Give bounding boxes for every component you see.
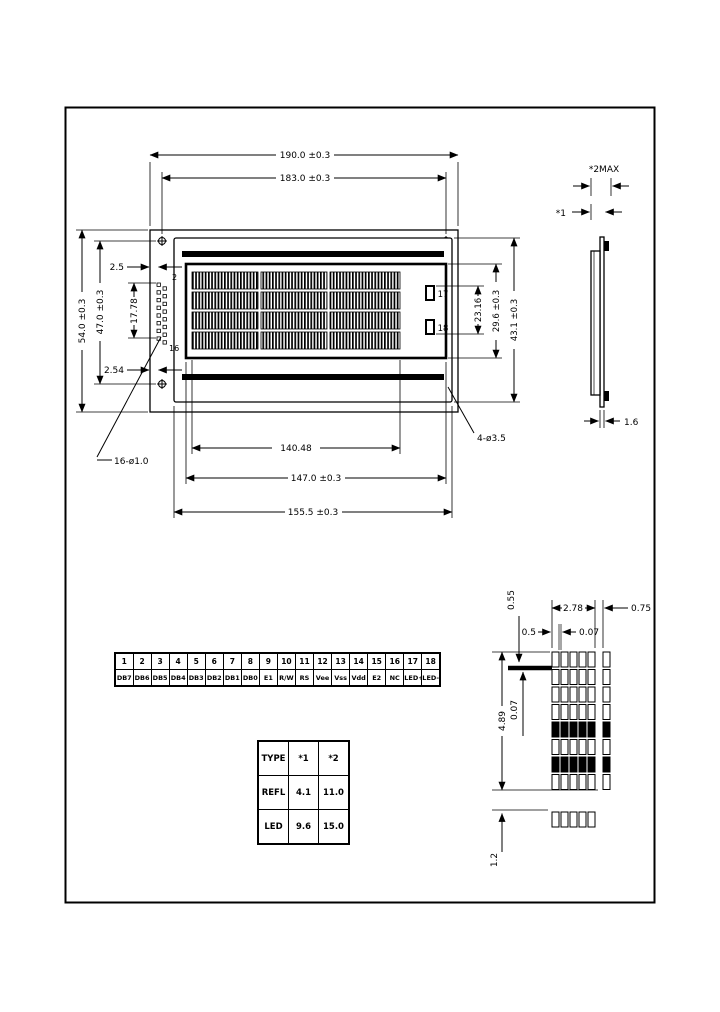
type-table-row-refl: REFL 4.1 11.0 [258, 776, 349, 810]
pin-number: 6 [205, 653, 223, 670]
pin-number: 12 [314, 653, 332, 670]
type-table-header-row: TYPE *1 *2 [258, 741, 349, 776]
pin-number: 8 [241, 653, 259, 670]
pin-name: E1 [259, 670, 277, 687]
type-table-header: *2 [319, 741, 350, 776]
type-table-cell: 4.1 [289, 776, 319, 810]
dim-thickness-1: *1 [556, 209, 566, 219]
solder-tab-bottom [604, 391, 609, 401]
pin-16-label: 16 [169, 344, 179, 353]
dim-va-height: 29.6 ±0.3 [492, 290, 502, 332]
type-table-cell: 9.6 [289, 810, 319, 845]
pin-assignment-table: 1 2 3 4 5 6 7 8 9 10 11 12 13 14 15 16 1… [114, 652, 441, 687]
dim-dot-width: 0.5 [522, 628, 536, 638]
pin-name: DB1 [223, 670, 241, 687]
pin-name: DB0 [241, 670, 259, 687]
dim-pcb-thickness: 1.6 [624, 418, 639, 428]
dim-dot-gap-v: 0.07 [510, 700, 520, 720]
pin-holes-label: 16-ø1.0 [114, 457, 149, 467]
dim-dot-height: 0.55 [507, 590, 517, 610]
type-thickness-table: TYPE *1 *2 REFL 4.1 11.0 LED 9.6 15.0 [257, 740, 350, 845]
pin-name: R/W [277, 670, 295, 687]
pin-name: E2 [368, 670, 386, 687]
pin-number: 17 [404, 653, 422, 670]
panel-side [591, 251, 600, 395]
solder-tab-top [604, 241, 609, 251]
datasheet-page: 17 18 2 16 190.0 ±0.3 183.0 ±0.3 54.0 ±0… [0, 0, 720, 1012]
pin-number: 15 [368, 653, 386, 670]
dim-dot-gap-h: 0.07 [579, 628, 599, 638]
pin-number: 16 [386, 653, 404, 670]
dim-char-width: 2.78 [563, 604, 583, 614]
bezel-bottom-bar [182, 374, 444, 380]
pad-17-label: 17 [438, 290, 449, 300]
dim-char-area-width: 140.48 [280, 444, 312, 454]
dim-char-height: 4.89 [498, 711, 508, 731]
dim-pin-pitch: 2.54 [104, 366, 124, 376]
pin-name: Vee [314, 670, 332, 687]
pin-2-label: 2 [172, 273, 177, 282]
pin-name: RS [295, 670, 313, 687]
pin-number-row: 1 2 3 4 5 6 7 8 9 10 11 12 13 14 15 16 1… [115, 653, 440, 670]
pad-18-label: 18 [438, 324, 449, 334]
dim-bezel-width: 155.5 ±0.3 [288, 508, 338, 518]
pad-18 [426, 320, 434, 334]
dim-edge-gap: 2.5 [110, 263, 124, 273]
type-table-header: TYPE [258, 741, 289, 776]
pin-name: LED+ [404, 670, 422, 687]
type-table-cell: 15.0 [319, 810, 350, 845]
next-line-dot-row [552, 812, 595, 827]
dim-width-outer: 190.0 ±0.3 [280, 151, 330, 161]
pin-name: DB5 [151, 670, 169, 687]
pin-number: 1 [115, 653, 133, 670]
dim-bezel-height: 43.1 ±0.3 [510, 299, 520, 341]
pin-number: 3 [151, 653, 169, 670]
pin-number: 13 [332, 653, 350, 670]
dim-height-holes: 47.0 ±0.3 [96, 290, 106, 335]
pin-name: Vdd [350, 670, 368, 687]
type-table-row-led: LED 9.6 15.0 [258, 810, 349, 845]
dim-height-outer: 54.0 ±0.3 [78, 299, 88, 344]
dim-max-thickness: *2MAX [589, 165, 619, 175]
type-table-cell: REFL [258, 776, 289, 810]
pin-name-row: DB7 DB6 DB5 DB4 DB3 DB2 DB1 DB0 E1 R/W R… [115, 670, 440, 687]
pad-17 [426, 286, 434, 300]
pin-number: 2 [133, 653, 151, 670]
pin-number: 5 [187, 653, 205, 670]
dim-connector-span: 17.78 [130, 298, 140, 324]
pin-name: LED- [422, 670, 440, 687]
dim-width-holes: 183.0 ±0.3 [280, 174, 330, 184]
dim-va-width: 147.0 ±0.3 [291, 474, 341, 484]
type-table-cell: 11.0 [319, 776, 350, 810]
pin-name: DB6 [133, 670, 151, 687]
pin-number: 11 [295, 653, 313, 670]
pin-number: 18 [422, 653, 440, 670]
pin-number: 7 [223, 653, 241, 670]
dim-line-gap: 1.2 [490, 853, 500, 867]
type-table-header: *1 [289, 741, 319, 776]
bezel-top-bar [182, 251, 444, 257]
pin-number: 10 [277, 653, 295, 670]
pin-name: Vss [332, 670, 350, 687]
pin-name: NC [386, 670, 404, 687]
pin-number: 4 [169, 653, 187, 670]
pin-name: DB7 [115, 670, 133, 687]
pin-number: 9 [259, 653, 277, 670]
mechanical-drawing: 17 18 2 16 190.0 ±0.3 183.0 ±0.3 54.0 ±0… [0, 0, 720, 1012]
pin-name: DB2 [205, 670, 223, 687]
pin-name: DB3 [187, 670, 205, 687]
dim-pad-span: 23.16 [474, 298, 484, 322]
mount-holes-label: 4-ø3.5 [477, 434, 506, 444]
dim-char-gap: 0.75 [631, 604, 651, 614]
pin-name: DB4 [169, 670, 187, 687]
type-table-cell: LED [258, 810, 289, 845]
pin-number: 14 [350, 653, 368, 670]
